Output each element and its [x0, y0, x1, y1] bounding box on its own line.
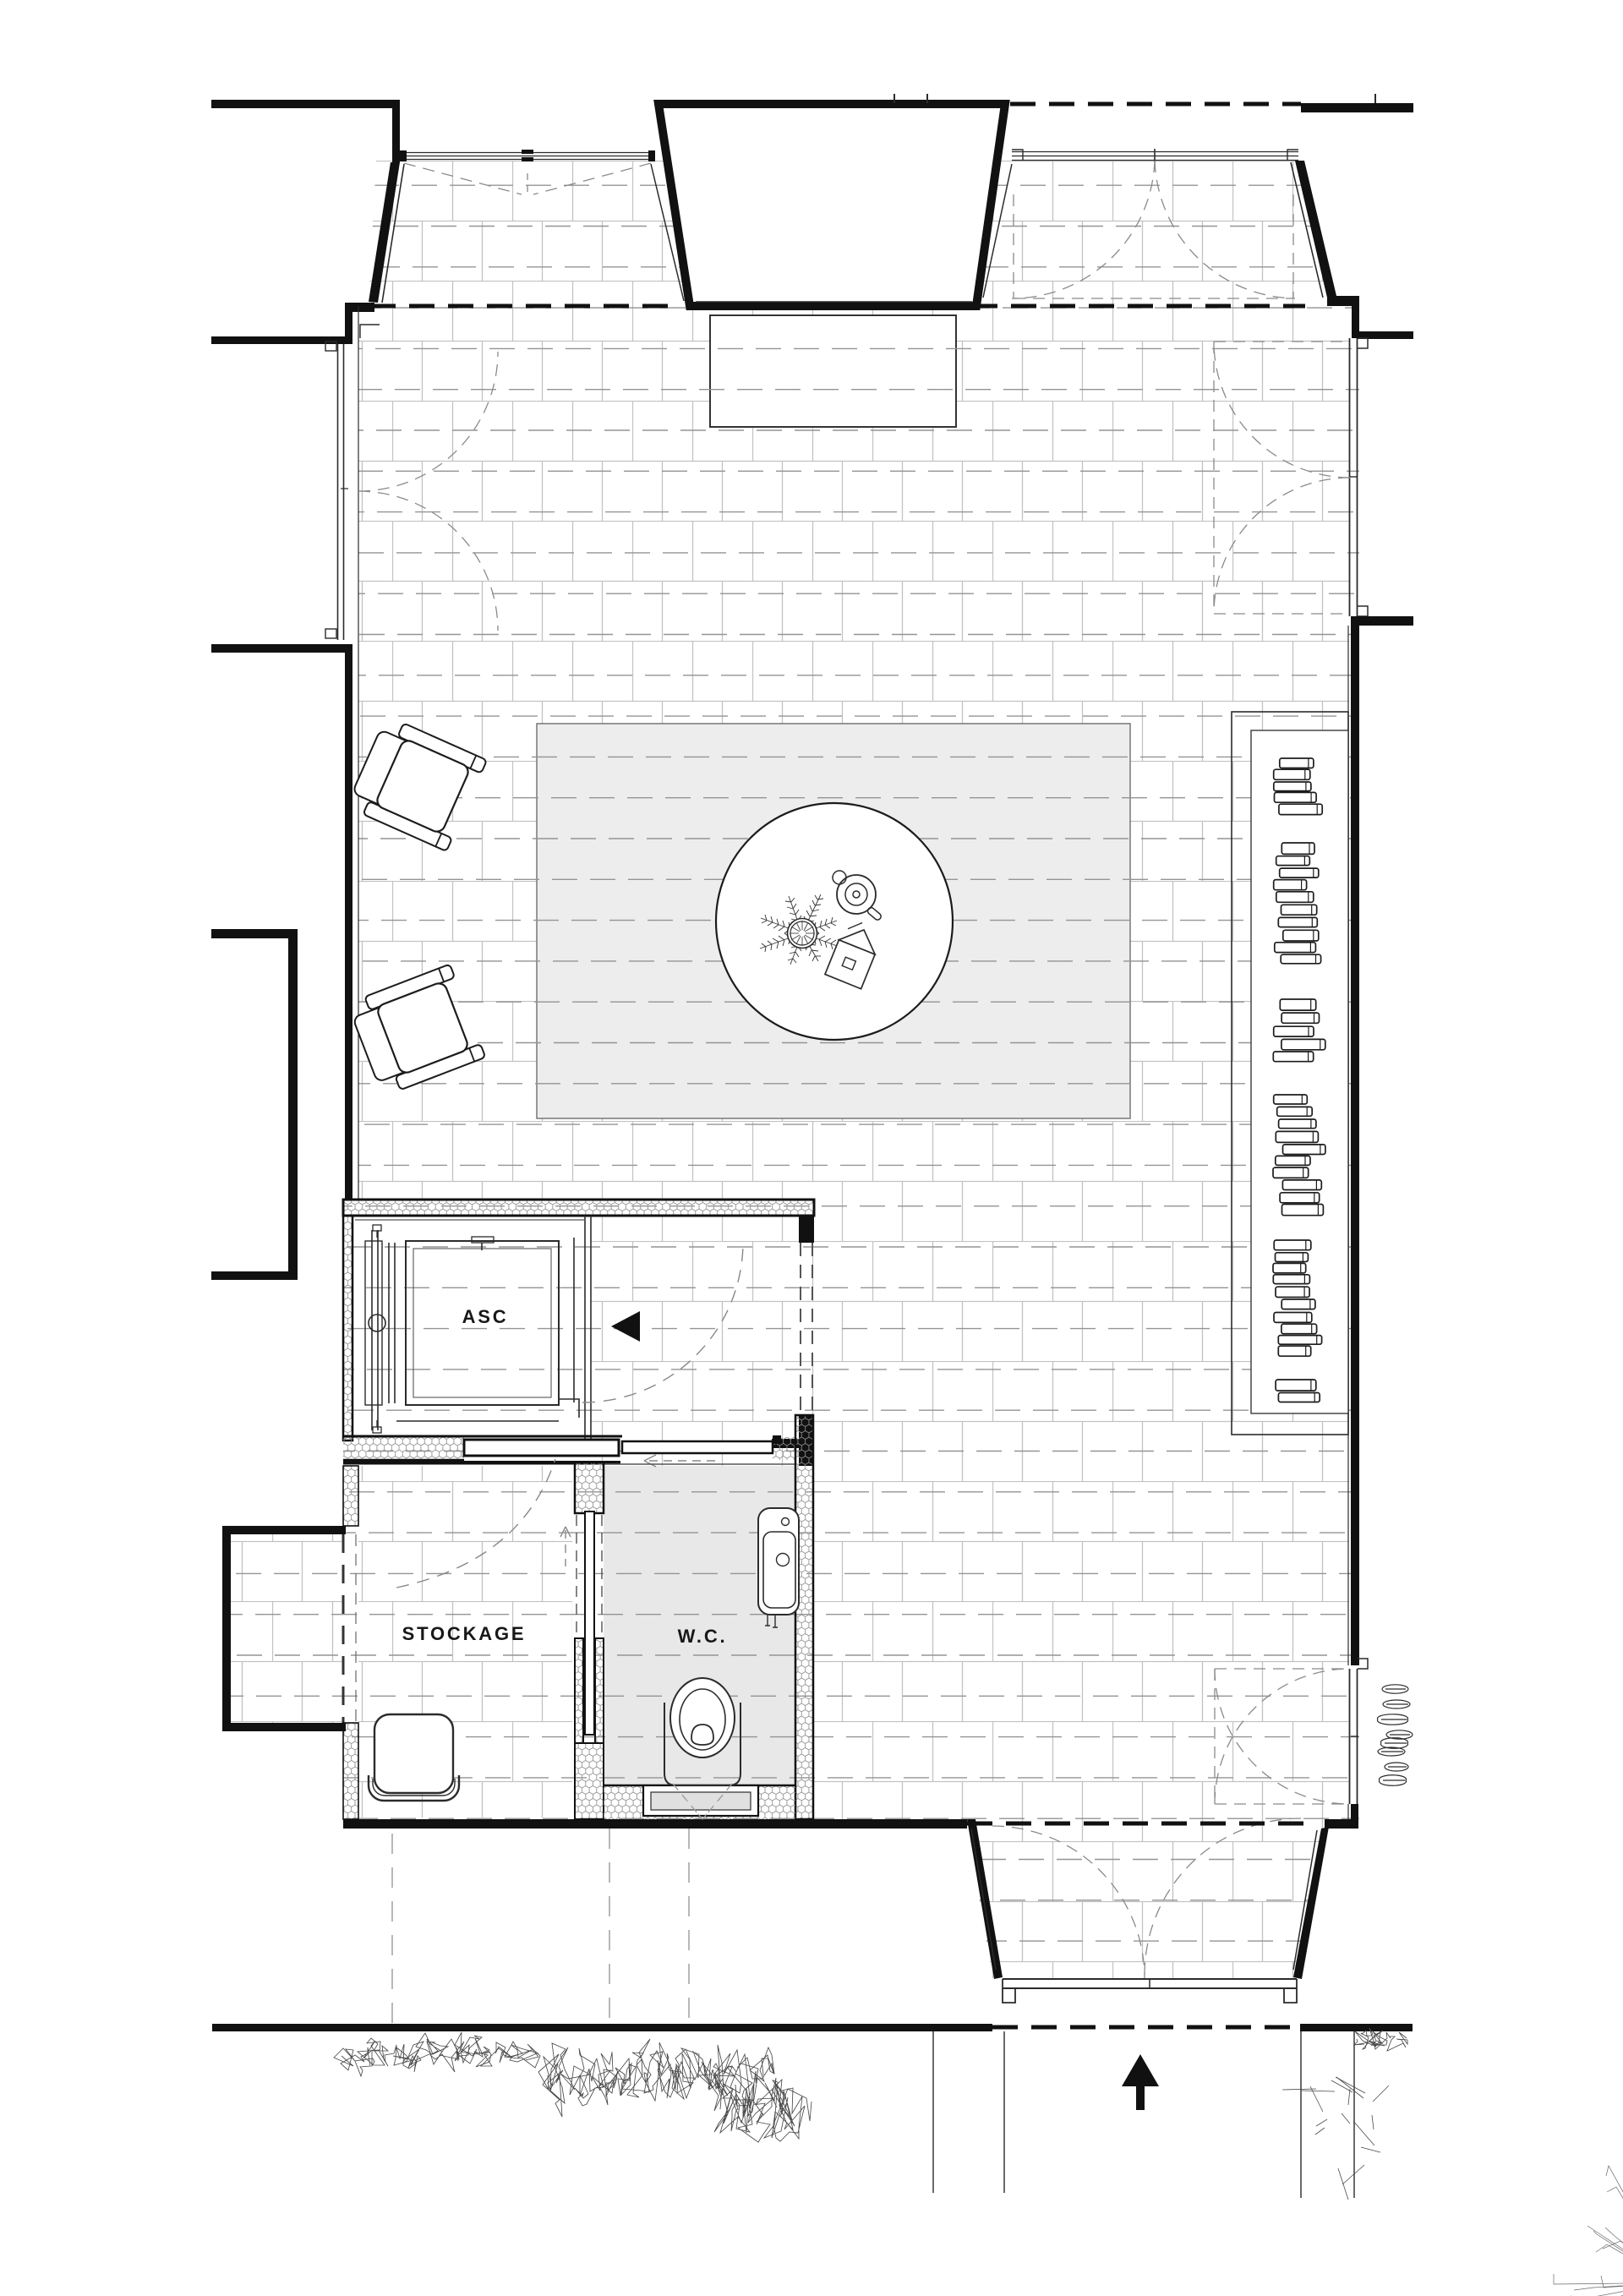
svg-text:STOCKAGE: STOCKAGE	[402, 1623, 527, 1644]
svg-text:ASC: ASC	[462, 1306, 509, 1327]
svg-text:W.C.: W.C.	[678, 1626, 728, 1647]
